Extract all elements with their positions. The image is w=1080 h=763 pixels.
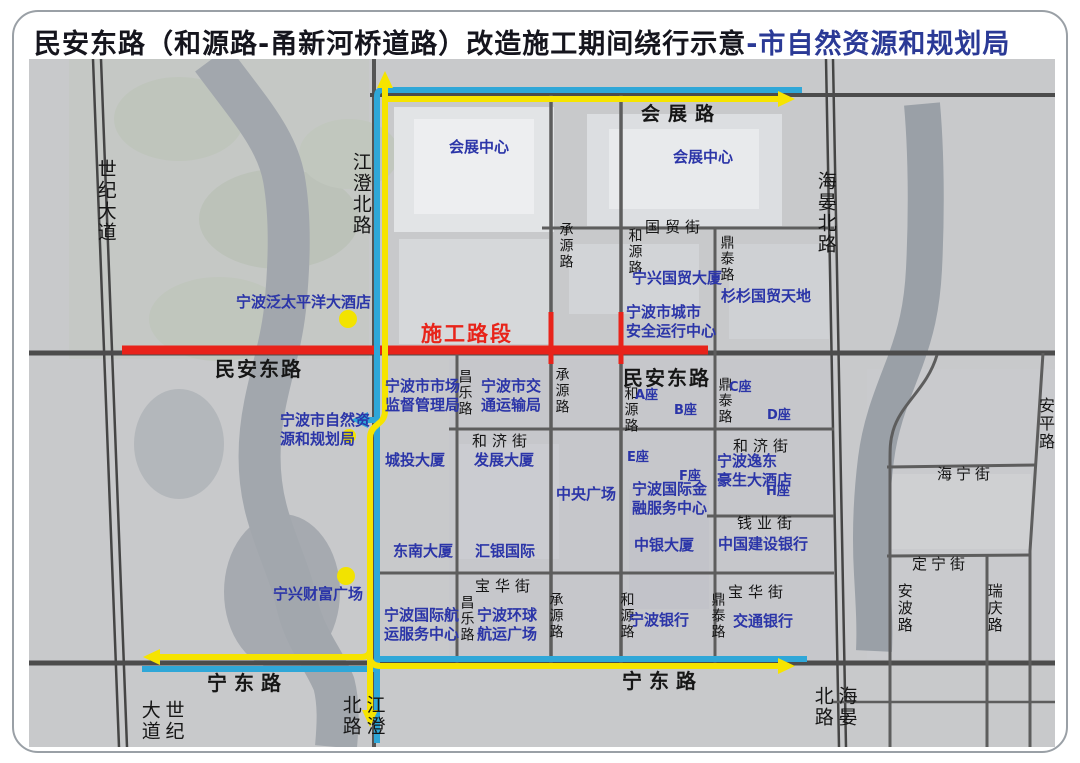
building-label-bank-of-ningbo: 宁波银行 <box>629 611 689 630</box>
road-label-chengyuan-mid: 承源路 <box>552 367 570 415</box>
building-label-finance-center: 宁波国际金 融服务中心 <box>632 480 707 518</box>
road-label-ruiqing: 瑞庆路 <box>985 583 1004 634</box>
road-label-shiji-south: 世纪大道 <box>137 700 185 747</box>
building-label-huizhan-center-east: 会展中心 <box>673 148 733 167</box>
building-label-fortune-plaza: 宁兴财富广场 <box>273 585 363 604</box>
building-label-ccb: 中国建设银行 <box>718 535 808 554</box>
poi-dot-pan-pacific <box>339 310 357 328</box>
building-label-shipping-center: 宁波国际航 运服务中心 <box>384 606 459 644</box>
road-label-anping: 安平路 <box>1035 397 1055 451</box>
building-label-market-bureau: 宁波市市场 监督管理局 <box>385 377 460 415</box>
road-label-ningdong-west: 宁东路 <box>207 671 288 696</box>
road-label-anbo: 安波路 <box>895 583 914 634</box>
road-label-haiyan-north: 海晏北路 <box>813 171 837 255</box>
road-label-ningdong-east: 宁东路 <box>622 669 703 694</box>
page-title: 民安东路（和源路-甬新河桥道路）改造施工期间绕行示意-市自然资源和规划局 <box>34 22 1010 61</box>
road-label-qianye: 钱业街 <box>737 514 797 533</box>
road-label-dingtai-south: 鼎泰路 <box>708 592 726 640</box>
road-label-jiangcheng-north: 江澄北路 <box>348 152 372 236</box>
building-label-huizhan-center-west: 会展中心 <box>449 138 509 157</box>
building-label-city-safety-center: 宁波市城市 安全运行中心 <box>626 303 716 341</box>
building-label-chengtou: 城投大厦 <box>385 451 445 470</box>
building-label-block-b: B座 <box>674 403 697 419</box>
map-frame-border: 民安东路（和源路-甬新河桥道路）改造施工期间绕行示意-市自然资源和规划局 <box>12 10 1068 753</box>
road-label-dingning: 定宁街 <box>912 555 969 574</box>
road-label-heji-west: 和济街 <box>472 432 532 451</box>
road-label-haiyan-south: 海晏北路 <box>810 686 858 747</box>
building-label-ningxing-guomao: 宁兴国贸大厦 <box>632 269 722 288</box>
page-title-agency: -市自然资源和规划局 <box>746 29 1010 60</box>
road-label-guomao: 国贸街 <box>645 218 705 237</box>
building-label-block-c: C座 <box>729 380 752 396</box>
building-label-zhongyin: 中银大厦 <box>634 536 694 555</box>
building-label-dongnan: 东南大厦 <box>393 542 453 561</box>
building-label-huiyin: 汇银国际 <box>475 542 535 561</box>
road-label-haining: 海宁街 <box>937 465 994 484</box>
road-label-baohua-west: 宝华街 <box>475 577 535 596</box>
building-label-block-d: D座 <box>767 408 791 424</box>
page-title-main: 民安东路（和源路-甬新河桥道路）改造施工期间绕行示意 <box>34 29 746 60</box>
building-label-bocom: 交通银行 <box>733 612 793 631</box>
road-label-minan-west: 民安东路 <box>215 357 303 382</box>
building-label-shanshan: 杉杉国贸天地 <box>721 287 811 306</box>
building-label-block-e: E座 <box>627 450 649 466</box>
building-label-planning-bureau: 宁波市自然资 源和规划局 <box>280 411 370 449</box>
detour-map: 施工路段 会展路 民安东路 民安东路 国贸街 和济街 和济街 钱业街 宝华街 宝… <box>29 59 1055 747</box>
road-label-shiji-north: 世纪大道 <box>93 159 117 243</box>
map-graphics <box>29 59 1055 747</box>
detour-map-page: 民安东路（和源路-甬新河桥道路）改造施工期间绕行示意-市自然资源和规划局 <box>0 0 1080 763</box>
building-label-fazhan: 发展大厦 <box>474 451 534 470</box>
road-label-changle-south: 昌乐路 <box>457 595 475 643</box>
building-label-transport-bureau: 宁波市交 通运输局 <box>481 377 541 415</box>
construction-section-label: 施工路段 <box>421 321 513 347</box>
poi-dot-fortune-plaza <box>337 567 355 585</box>
building-label-pan-pacific-hotel: 宁波泛太平洋大酒店 <box>236 293 371 312</box>
building-label-zhongyang-plaza: 中央广场 <box>556 485 616 504</box>
building-label-global-shipping: 宁波环球 航运广场 <box>477 606 537 644</box>
building-label-block-a: A座 <box>635 388 658 404</box>
road-label-jiangcheng-south: 江澄北路 <box>338 695 386 747</box>
building-label-yidong-hotel: 宁波逸东 豪生大酒店 <box>717 452 792 490</box>
road-label-baohua-east: 宝华街 <box>728 583 788 602</box>
road-label-chengyuan-south: 承源路 <box>546 592 564 640</box>
road-label-huizhan: 会展路 <box>641 103 722 127</box>
road-label-chengyuan-north: 承源路 <box>556 222 574 270</box>
